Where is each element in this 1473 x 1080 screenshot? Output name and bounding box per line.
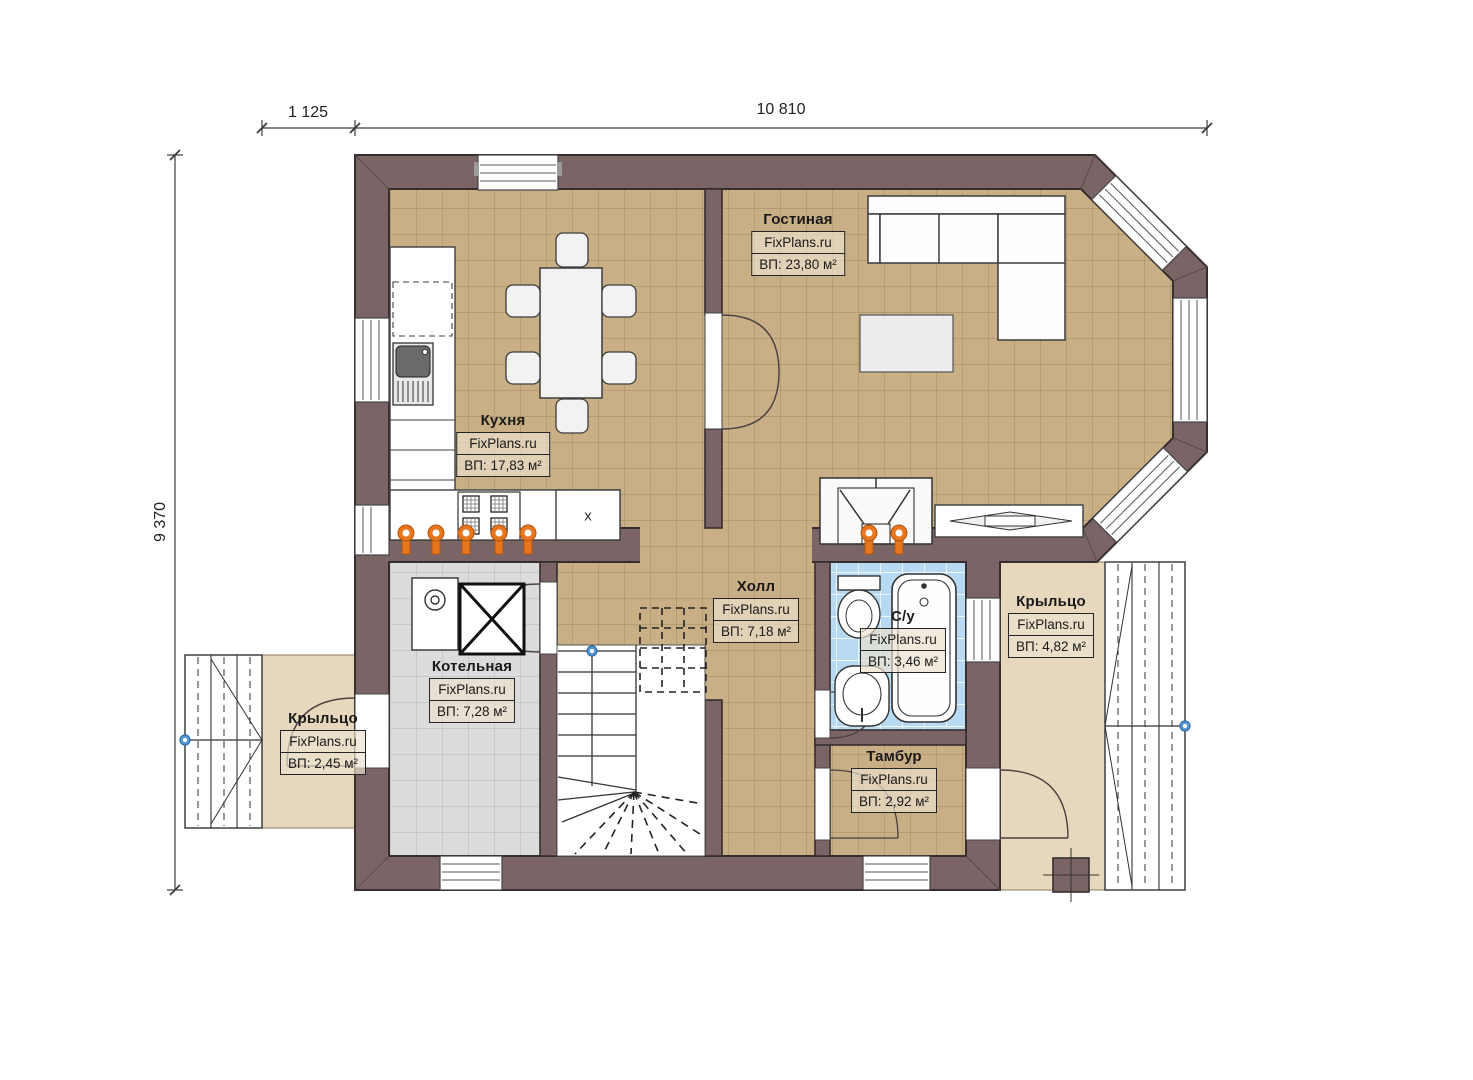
room-name: Кухня (456, 412, 550, 429)
window-kitchen-left (355, 318, 389, 402)
room-label-kitchen: Кухня FixPlans.ru ВП: 17,83 м² (456, 412, 550, 477)
dimension-label-porch-width: 1 125 (288, 104, 328, 122)
room-brand: FixPlans.ru (456, 432, 550, 455)
window-bathroom-right (966, 598, 1000, 662)
boiler (460, 584, 524, 654)
dining-table (540, 268, 602, 398)
room-brand: FixPlans.ru (1008, 613, 1094, 636)
room-brand: FixPlans.ru (851, 768, 937, 791)
room-label-boiler: Котельная FixPlans.ru ВП: 7,28 м² (429, 658, 515, 723)
stairs (557, 645, 705, 856)
room-name: Котельная (429, 658, 515, 675)
room-label-porch-right: Крыльцо FixPlans.ru ВП: 4,82 м² (1008, 593, 1094, 658)
room-name: Гостиная (751, 211, 845, 228)
room-label-hall: Холл FixPlans.ru ВП: 7,18 м² (713, 578, 799, 643)
tv-console (935, 505, 1083, 537)
room-brand: FixPlans.ru (429, 678, 515, 701)
room-name: Тамбур (851, 748, 937, 765)
porch-steps-right (1105, 562, 1185, 890)
room-brand: FixPlans.ru (860, 628, 946, 651)
room-area: ВП: 23,80 м² (751, 254, 845, 276)
room-label-living: Гостиная FixPlans.ru ВП: 23,80 м² (751, 211, 845, 276)
room-area: ВП: 7,28 м² (429, 701, 515, 723)
coffee-table (860, 315, 953, 372)
window-kitchen-left-small (355, 505, 389, 555)
room-label-vestibule: Тамбур FixPlans.ru ВП: 2,92 м² (851, 748, 937, 813)
floor-plan-page: 1 125 10 810 9 370 x Гостиная FixPlans.r… (0, 0, 1473, 1080)
room-label-bathroom: С/у FixPlans.ru ВП: 3,46 м² (860, 608, 946, 673)
window-boiler-bottom (440, 856, 502, 890)
room-area: ВП: 7,18 м² (713, 621, 799, 643)
room-name: Крыльцо (1008, 593, 1094, 610)
dimension-label-house-depth: 9 370 (152, 502, 170, 542)
room-area: ВП: 2,45 м² (280, 753, 366, 775)
window-kitchen-top (474, 155, 562, 190)
porch-steps-left (185, 655, 262, 828)
floor-plan-drawing (0, 0, 1473, 1080)
kitchen-sink (393, 343, 433, 405)
washing-machine (412, 578, 458, 650)
hall-living-opening (640, 527, 812, 563)
room-area: ВП: 3,46 м² (860, 651, 946, 673)
window-vestibule-bottom (863, 856, 930, 890)
room-brand: FixPlans.ru (713, 598, 799, 621)
room-label-porch-left: Крыльцо FixPlans.ru ВП: 2,45 м² (280, 710, 366, 775)
window-bay-right (1173, 298, 1207, 422)
room-brand: FixPlans.ru (280, 730, 366, 753)
room-area: ВП: 4,82 м² (1008, 636, 1094, 658)
bathroom-sink (835, 666, 889, 726)
room-area: ВП: 2,92 м² (851, 791, 937, 813)
room-name: С/у (860, 608, 946, 625)
cabinet-mark: x (584, 508, 592, 525)
room-brand: FixPlans.ru (751, 231, 845, 254)
dimension-label-house-width: 10 810 (757, 101, 806, 119)
room-name: Холл (713, 578, 799, 595)
room-name: Крыльцо (280, 710, 366, 727)
room-area: ВП: 17,83 м² (456, 455, 550, 477)
dimension-line-top (257, 120, 1212, 136)
